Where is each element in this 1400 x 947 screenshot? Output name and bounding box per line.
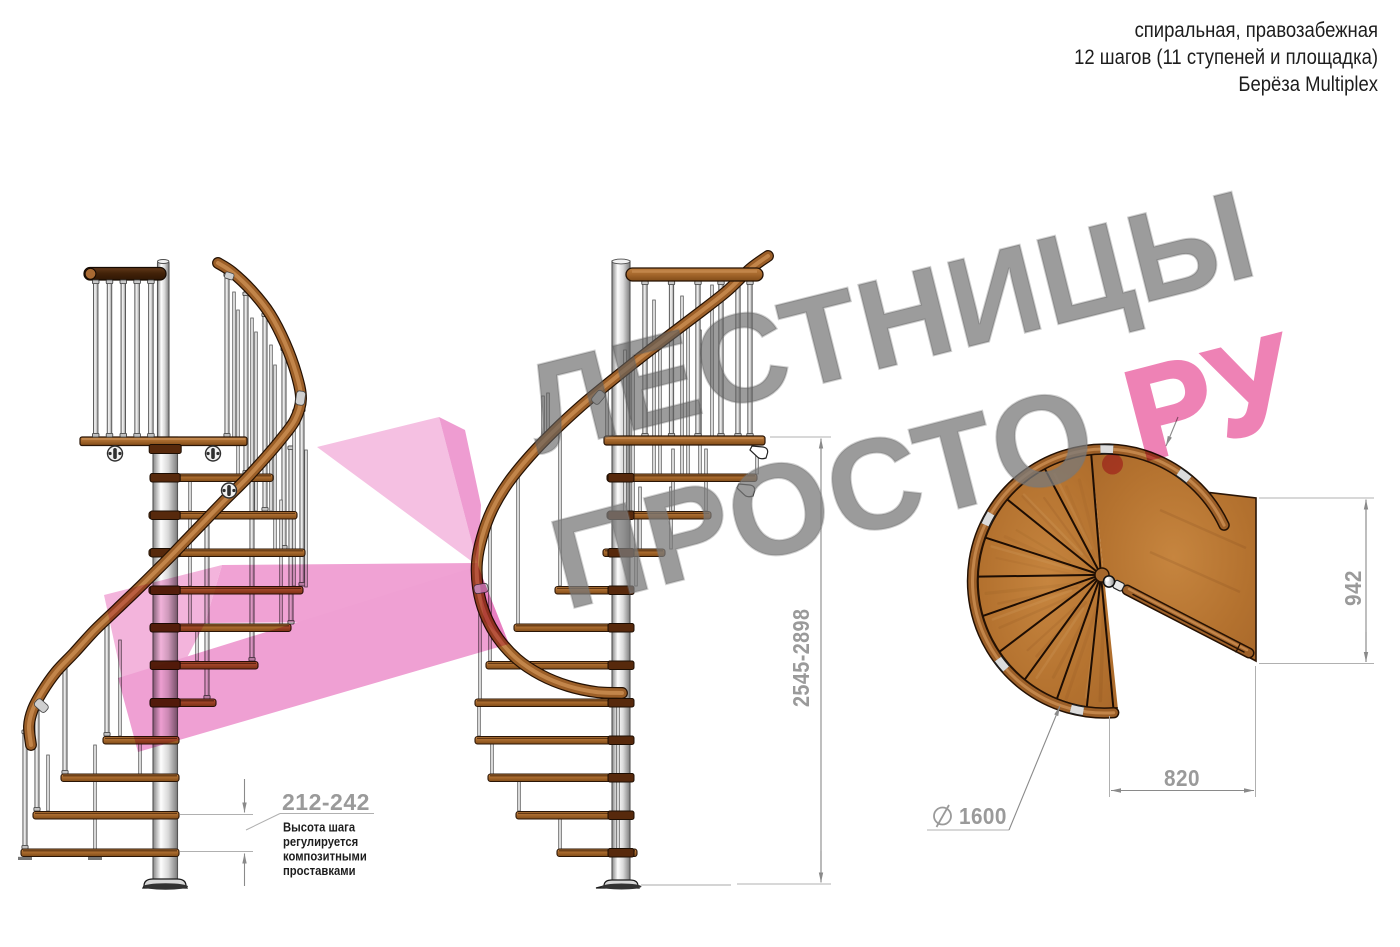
svg-text:2545-2898: 2545-2898	[789, 609, 815, 707]
svg-text:820: 820	[1164, 765, 1200, 791]
svg-text:1600: 1600	[959, 803, 1007, 829]
svg-text:Берёза Multiplex: Берёза Multiplex	[1238, 73, 1378, 96]
svg-text:спиральная, правозабежная: спиральная, правозабежная	[1135, 19, 1378, 42]
svg-text:проставками: проставками	[283, 863, 355, 878]
svg-text:композитными: композитными	[283, 849, 367, 864]
svg-text:регулируется: регулируется	[283, 834, 358, 849]
svg-text:12 шагов (11 ступеней и площад: 12 шагов (11 ступеней и площадка)	[1074, 46, 1378, 69]
svg-text:942: 942	[1340, 570, 1366, 606]
svg-text:212-242: 212-242	[282, 789, 370, 815]
svg-text:Высота шага: Высота шага	[283, 820, 355, 835]
